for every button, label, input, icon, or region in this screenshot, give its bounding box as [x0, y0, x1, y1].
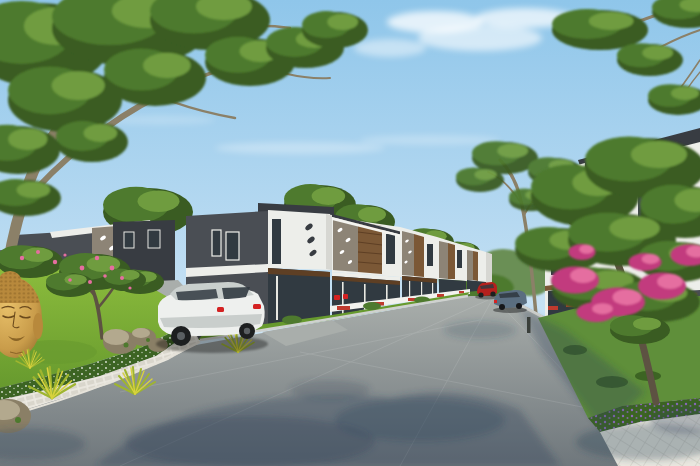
- perforated-panel: [333, 219, 358, 272]
- blue-sedan: [493, 290, 527, 313]
- render-viewport: [0, 0, 700, 466]
- bollard: [527, 317, 531, 333]
- taillight: [253, 304, 261, 309]
- window: [226, 232, 239, 260]
- white-sedan: [156, 282, 268, 353]
- taillight: [217, 307, 224, 312]
- scene-canvas: [0, 0, 700, 466]
- window: [212, 230, 221, 256]
